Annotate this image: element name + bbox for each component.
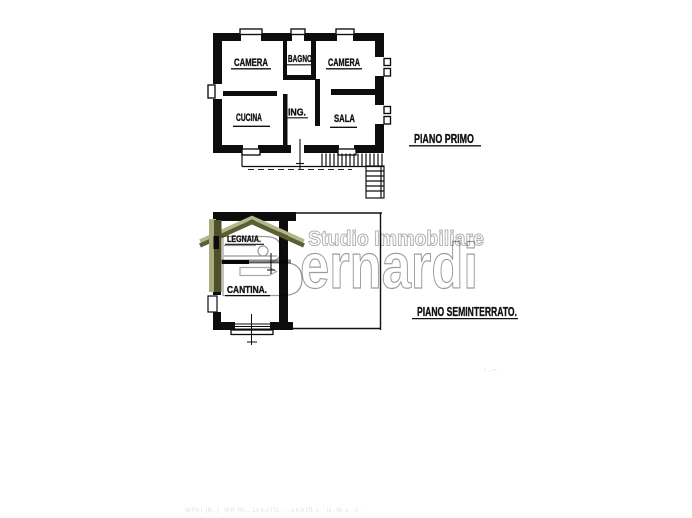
svg-text:- . --: - . --	[484, 367, 497, 374]
svg-text:SALA: SALA	[334, 113, 355, 125]
svg-text:W.Ps r. (R...) . W.P. Rv....: W.Ps r. (R...) . W.P. Rv.... Ls k.A ITL …	[185, 508, 362, 514]
svg-text:ernardi: ernardi	[300, 230, 478, 302]
svg-text:ING.: ING.	[288, 107, 306, 119]
svg-text:PIANO PRIMO: PIANO PRIMO	[414, 131, 474, 146]
svg-text:BAGNO: BAGNO	[288, 53, 312, 65]
svg-text:LEGNAIA.: LEGNAIA.	[227, 234, 261, 245]
svg-text:PIANO SEMINTERRATO.: PIANO SEMINTERRATO.	[417, 304, 517, 319]
svg-text:CAMERA: CAMERA	[328, 57, 360, 69]
svg-text:CAMERA: CAMERA	[234, 57, 268, 69]
svg-text:CUCINA: CUCINA	[236, 112, 262, 124]
svg-text:CANTINA.: CANTINA.	[227, 285, 267, 296]
